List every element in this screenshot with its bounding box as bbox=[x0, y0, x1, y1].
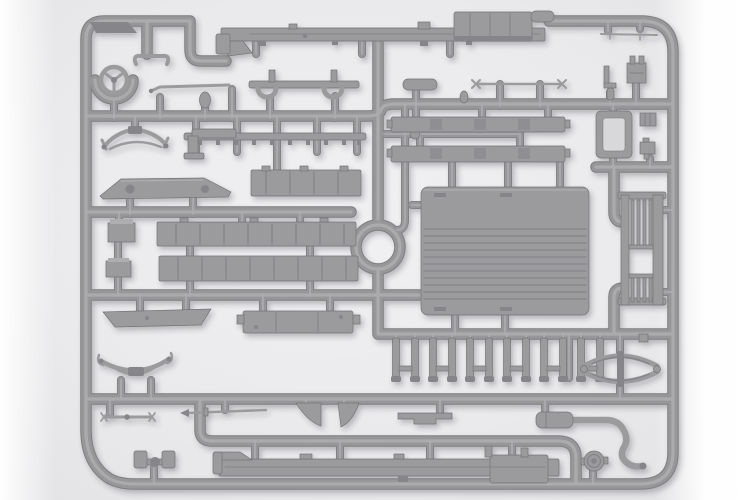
chassis-rail-lower bbox=[213, 446, 559, 483]
bed-side-long-1 bbox=[157, 218, 356, 246]
sprue-photo bbox=[0, 0, 750, 500]
notched-bracket bbox=[398, 413, 452, 424]
bed-side-short bbox=[251, 166, 361, 196]
steering-wheel bbox=[101, 67, 127, 93]
front-leaf-spring bbox=[102, 126, 169, 150]
screenshot-root bbox=[0, 0, 750, 500]
small-fitting-1 bbox=[640, 113, 656, 126]
bed-floor-panel bbox=[421, 187, 589, 315]
sprue bbox=[86, 11, 673, 484]
bed-side-long-2 bbox=[159, 256, 358, 281]
control-lever bbox=[135, 56, 168, 64]
small-knob bbox=[460, 91, 468, 103]
small-block bbox=[639, 334, 648, 342]
l-bracket bbox=[184, 129, 236, 159]
axle-pad-part bbox=[134, 451, 175, 468]
fender bbox=[100, 178, 231, 199]
running-board-1 bbox=[387, 117, 570, 132]
top-right-box bbox=[627, 56, 646, 83]
tool-box-2 bbox=[106, 258, 131, 277]
top-right-rod bbox=[601, 30, 657, 40]
tool-box-1 bbox=[108, 219, 135, 242]
small-oval bbox=[200, 92, 211, 108]
gusset-pair bbox=[296, 403, 359, 427]
center-sill bbox=[237, 311, 360, 333]
running-board-2 bbox=[387, 146, 570, 162]
step-plate bbox=[103, 309, 211, 327]
hook-bracket bbox=[249, 70, 359, 97]
steering-cylinder bbox=[403, 79, 437, 90]
axle-rod-right bbox=[472, 80, 566, 88]
tailgate-rack bbox=[618, 192, 666, 305]
wheel-hub bbox=[581, 451, 608, 471]
radiator-frame bbox=[596, 111, 632, 158]
thin-rod-upper bbox=[149, 85, 229, 93]
top-right-bracket bbox=[604, 66, 616, 100]
left-leaf-spring bbox=[98, 353, 172, 376]
